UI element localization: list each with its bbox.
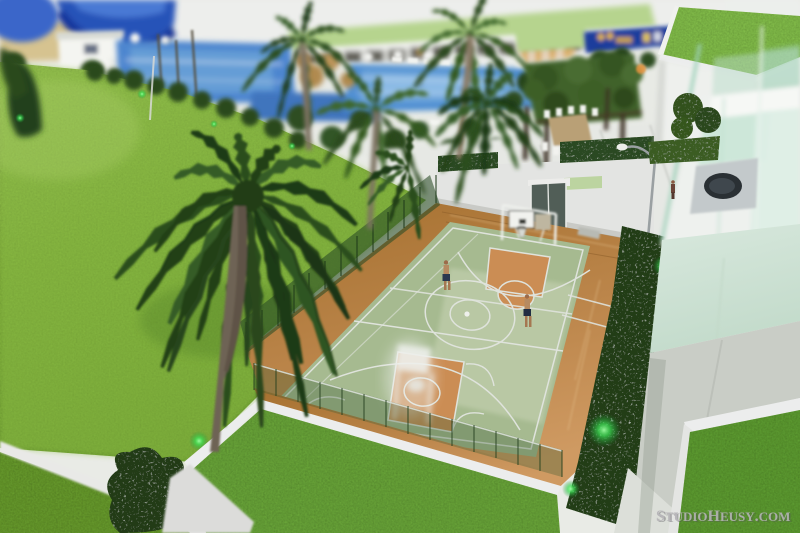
- svg-text:STUDIOHEUSY.COM: STUDIOHEUSY.COM: [656, 508, 790, 525]
